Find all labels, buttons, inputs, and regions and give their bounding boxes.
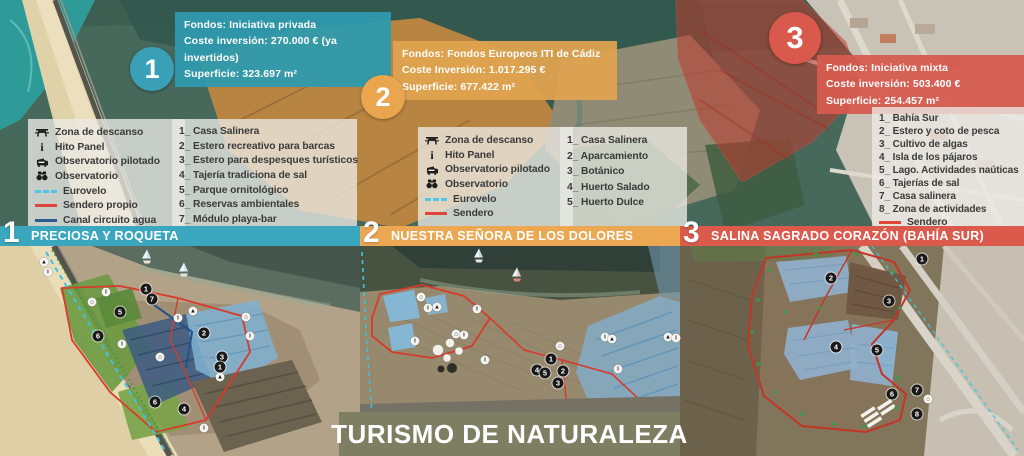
sailboat-icon [140,249,154,270]
legend-row-eurovelo: Eurovelo [425,192,566,207]
list-item: 1_ Casa Salinera [567,133,680,149]
list-item: 4_ Huerto Salado [567,180,680,196]
list-item: 2_ Estero recreativo para barcas [179,140,350,155]
trail-line-swatch [425,212,447,215]
legend-row-eurovelo: Eurovelo [35,184,178,199]
feature-list-area-2: 1_ Casa Salinera2_ Aparcamiento3_ Botáni… [560,127,687,234]
list-item: 3_ Cultivo de algas [879,138,1024,151]
legend-row-observatory: Observatorio [425,177,566,192]
funds-line: Fondos: Iniciativa mixta [826,60,1018,76]
legend-row-hito-panel: i Hito Panel [35,140,178,155]
salinas-tourism-infographic: 175623164 ▲ii⌂i⌂i▲⌂i▲i 14523 ⌂i▲i⌂iii⌂i▲… [0,0,1024,456]
sailboat-icon [177,262,191,283]
section-number: 2 [363,218,380,248]
legend-label: Eurovelo [63,186,106,197]
section-header-1: 1 PRECIOSA Y ROQUETA [0,226,360,246]
list-item: 1_ Casa Salinera [179,125,350,140]
legend-row-hito-panel: i Hito Panel [425,148,566,163]
info-panel-icon: i [425,150,439,161]
area-1-badge: 1 [130,47,174,91]
section-title: SALINA SAGRADO CORAZÓN (BAHÍA SUR) [711,229,984,243]
legend-label: Observatorio [55,171,118,182]
legend-label: Observatorio pilotado [445,164,550,175]
section-header-2: 2 NUESTRA SEÑORA DE LOS DOLORES [360,226,680,246]
own-trail-line-swatch [35,204,57,207]
area-2-info-box: Fondos: Fondos Europeos ITI de Cádiz Cos… [393,41,617,100]
piloted-observatory-icon [35,156,49,167]
feature-list-area-3: 1_ Bahía Sur2_ Estero y coto de pesca3_ … [872,107,1024,236]
section-title: PRECIOSA Y ROQUETA [31,229,179,243]
legend-label: Sendero [453,208,494,219]
cost-line: Coste Inversión: 1.017.295 € [402,62,608,78]
poster-title: TURISMO DE NATURALEZA [331,419,688,450]
eurovelo-line-swatch [35,190,57,193]
list-item: 6_ Reservas ambientales [179,198,350,213]
legend-label: Hito Panel [445,150,494,161]
section-title: NUESTRA SEÑORA DE LOS DOLORES [391,229,633,243]
list-item: 5_ Lago. Actividades naúticas [879,164,1024,177]
sailboat-icon [472,248,486,269]
funds-line: Fondos: Iniciativa privada [184,17,382,33]
section-number: 1 [3,218,20,248]
list-item: 8_ Zona de actividades [879,203,1024,216]
list-item: 5_ Parque ornitológico [179,184,350,199]
area-3-info-box: Fondos: Iniciativa mixta Coste inversión… [817,55,1024,114]
list-item: 6_ Tajerías de sal [879,177,1024,190]
section-number: 3 [683,218,700,248]
list-item: 2_ Estero y coto de pesca [879,125,1024,138]
surface-line: Superficie: 677.422 m² [402,79,608,95]
piloted-observatory-icon [425,164,439,175]
legend-label: Zona de descanso [55,127,143,138]
legend-label: Canal circuito agua [63,215,156,226]
list-item: 4_ Tajería tradiciona de sal [179,169,350,184]
area-3-badge: 3 [769,12,821,64]
trail-line-swatch [879,221,901,224]
list-item: 4_ Isla de los pájaros [879,151,1024,164]
legend-box-area-2: Zona de descanso i Hito Panel Observator… [418,127,573,234]
legend-label: Hito Panel [55,142,104,153]
legend-label: Zona de descanso [445,135,533,146]
funds-line: Fondos: Fondos Europeos ITI de Cádiz [402,46,608,62]
list-item: 1_ Bahía Sur [879,112,1024,125]
list-item: 5_ Huerto Dulce [567,195,680,211]
feature-list-area-1: 1_ Casa Salinera2_ Estero recreativo par… [172,119,357,237]
legend-row-sendero-propio: Sendero propio [35,198,178,213]
binoculars-icon [425,179,439,190]
list-item: 3_ Botánico [567,164,680,180]
legend-label: Observatorio [445,179,508,190]
cost-line: Coste inversión: 503.400 € [826,76,1018,92]
area-2-badge: 2 [361,75,405,119]
surface-line: Superficie: 323.697 m² [184,66,382,82]
rest-area-icon [425,135,439,146]
list-item: 7_ Casa salinera [879,190,1024,203]
legend-row-rest-area: Zona de descanso [35,125,178,140]
list-item: 2_ Aparcamiento [567,149,680,165]
eurovelo-line-swatch [425,198,447,201]
legend-row-observatory: Observatorio [35,169,178,184]
legend-row-rest-area: Zona de descanso [425,133,566,148]
rest-area-icon [35,127,49,138]
legend-row-observatory-piloted: Observatorio pilotado [35,154,178,169]
cost-line: Coste inversión: 270.000 € (ya invertido… [184,33,382,66]
section-header-3: 3 SALINA SAGRADO CORAZÓN (BAHÍA SUR) [680,226,1024,246]
info-panel-icon: i [35,142,49,153]
legend-label: Observatorio pilotado [55,156,160,167]
legend-row-observatory-piloted: Observatorio pilotado [425,162,566,177]
sailboat-icon [510,267,524,288]
legend-label: Eurovelo [453,194,496,205]
list-item: 3_ Estero para despesques turísticos [179,154,350,169]
area-1-info-box: Fondos: Iniciativa privada Coste inversi… [175,12,391,87]
water-canal-line-swatch [35,219,57,222]
binoculars-icon [35,171,49,182]
poster-title-box: TURISMO DE NATURALEZA [339,412,680,456]
legend-row-sendero: Sendero [425,206,566,221]
legend-label: Sendero propio [63,200,138,211]
legend-box-area-1: Zona de descanso i Hito Panel Observator… [28,119,185,237]
